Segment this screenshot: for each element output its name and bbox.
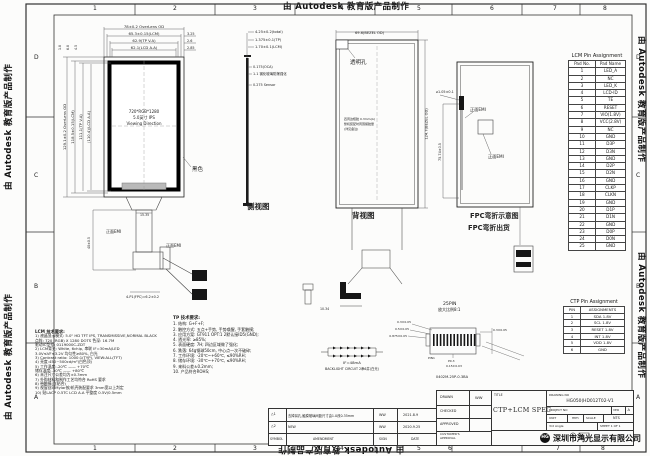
- back-view: 69.6(BEZEL OD) 124.7(BEZEL OD) 透明孔 四周边框胶…: [303, 30, 429, 311]
- dim-label: 4.5: [74, 45, 78, 50]
- pad-name: LCD-ID: [596, 90, 626, 97]
- pad-no: 9: [569, 126, 596, 133]
- pad-no: 12: [569, 148, 596, 155]
- front-view: [63, 27, 207, 300]
- pad-name: LED_A: [596, 68, 626, 75]
- dim-label: 1.70±0.1(LCM): [255, 45, 283, 49]
- pad-name: GND: [596, 221, 626, 228]
- emi-label: 正面EMI: [106, 229, 121, 234]
- note-line: (详见备注): [344, 126, 358, 131]
- pad-no: 3: [569, 82, 596, 89]
- pin-row: 4 INT 1.8V: [564, 333, 625, 340]
- fpc-bend-subtitle: FPC弯折出货: [468, 223, 510, 232]
- pad-no: 6: [569, 104, 596, 111]
- fpc-bend-view: ⌀1.05±0.1 75.74±0.5 正面EMI 正面EMI FPC弯折示意图…: [436, 62, 533, 272]
- panel-size: 5.0英寸 IPS: [133, 114, 155, 120]
- pin-row: 1 LED_A: [569, 68, 626, 75]
- pad-no: 21: [569, 214, 596, 221]
- pad-name: D1P: [596, 206, 626, 213]
- pin-row: 3 LED_K: [569, 82, 626, 89]
- pin-no: 2: [564, 320, 581, 327]
- title-block: DRAWN WW CHECKED APPROVED CUSTOMER'S APP…: [436, 390, 634, 446]
- drawing-no-value: HG050(HD012T02-V1: [547, 399, 633, 404]
- col-header: Pad Name: [596, 61, 626, 68]
- ctp-pin-assignment: CTP Pin Assignment PIN ASSIGNMENTS 1 SDA…: [560, 300, 628, 354]
- angle-label: 3rd Angle: [549, 424, 563, 428]
- connector-scale: 放大比例8:1: [438, 306, 461, 312]
- lcm-pin-assignment: LCM Pin Assignment Pad No. Pad Name 1 LE…: [566, 53, 628, 251]
- pin-row: 6 RESET: [569, 104, 626, 111]
- dim-label: 4.25±0.2(total): [255, 30, 283, 34]
- pin-row: 10 GND: [569, 133, 626, 140]
- dim-label: 6.8: [66, 45, 70, 50]
- company-logo: HG: [540, 433, 550, 443]
- pad-no: 16: [569, 177, 596, 184]
- dim-label: 2.6: [187, 39, 192, 43]
- pin-row: 6 GND: [564, 347, 625, 354]
- pad-no: 17: [569, 185, 596, 192]
- pin-no: 1: [564, 313, 581, 320]
- fpc-stiffener-1: [192, 270, 207, 281]
- pad-no: 8: [569, 119, 596, 126]
- revision-table: △1 去掉耳孔,触摸玻璃间距尺寸由1.0改0.35mm WW 2021.8.9 …: [268, 408, 438, 446]
- pin-row: 2 SCL 1.8V: [564, 320, 625, 327]
- ctp-pin-table: PIN ASSIGNMENTS 1 SDA 1.8V 2 SCL 1.8V: [563, 306, 625, 354]
- pin-row: 18 CLKN: [569, 192, 626, 199]
- pin-row: 5 TE: [569, 97, 626, 104]
- backlight-label: BACKLIGHT CIRCUIT 2串6并(白光): [325, 366, 379, 371]
- pin-no: 5: [564, 340, 581, 347]
- drawn-value: WW: [475, 395, 483, 400]
- pin-row: 17 CLKP: [569, 185, 626, 192]
- rev-amendment: 去掉耳孔,触摸玻璃间距尺寸由1.0改0.35mm: [288, 413, 354, 418]
- pad-no: 23: [569, 228, 596, 235]
- pad-no: 10: [569, 133, 596, 140]
- pad-no: 5: [569, 97, 596, 104]
- pin-row: 23 D0P: [569, 228, 626, 235]
- rev-symbol: △2: [271, 424, 276, 428]
- pad-no: 7: [569, 112, 596, 119]
- dim-label: 124.7(BEZEL OD): [425, 108, 429, 140]
- dim-label: 118.5±0.15(LCM): [70, 110, 75, 144]
- hole-label: 透明孔: [350, 58, 367, 66]
- emi-label: 正面EMI: [470, 107, 486, 113]
- pad-no: 13: [569, 155, 596, 162]
- pin-row: 16 GND: [569, 177, 626, 184]
- rev-symbol: △1: [271, 412, 276, 416]
- dim-label: 1.375±0.1(TP): [255, 38, 282, 42]
- note-line: 四周边框胶 0.3mm(A): [344, 116, 375, 121]
- emi-label: 正面EMI: [488, 154, 504, 160]
- pad-name: D0N: [596, 236, 626, 243]
- pad-name: LED_K: [596, 82, 626, 89]
- dim-label: 40±0.5: [87, 237, 91, 249]
- col-header: Pad No.: [569, 61, 596, 68]
- pin-row: 2 NC: [569, 75, 626, 82]
- pin-row: 8 VCC(2.8V): [569, 119, 626, 126]
- dim-label: 15.35: [140, 213, 149, 217]
- dim-label: 62.9(TP V.A): [132, 38, 156, 43]
- pin-row: 13 GND: [569, 155, 626, 162]
- viewing-direction: Viewing Direction: [126, 121, 161, 126]
- dim-label: 2.85: [187, 46, 195, 50]
- rev-date: 2020.9.25: [403, 425, 420, 429]
- pin-row: 25 GND: [569, 243, 626, 250]
- note-line: 10) 贴LACP 0.5TC LCD A.A 平整度 0.5V/0.5mm: [35, 391, 207, 395]
- backlight-current: IF=48mA: [343, 360, 361, 365]
- dim-label: 78±0.2 OverLens OD: [124, 24, 164, 29]
- pad-no: 25: [569, 243, 596, 250]
- dim-label: 129.1±0.2 OverLens OD: [62, 104, 67, 150]
- sheet-value: SHEET 1 OF 1: [600, 424, 621, 428]
- rev-sign: WW: [379, 425, 386, 429]
- dim-label: 75.74±0.5: [438, 143, 442, 161]
- ver-value: A: [628, 408, 630, 412]
- layer-note: 1.1 钢化玻璃防爆强化: [253, 71, 287, 76]
- pad-no: 14: [569, 163, 596, 170]
- pin-row: 3 RESET 1.8V: [564, 327, 625, 334]
- dim-label: 1.8: [58, 45, 62, 50]
- dim-label: 62.1(LCD A.A): [131, 45, 158, 50]
- pin-row: 4 LCD-ID: [569, 90, 626, 97]
- dim-label: 0.15±0.03: [446, 364, 462, 368]
- fpc-stiffener-2: [192, 289, 207, 300]
- pad-name: RESET: [596, 104, 626, 111]
- dim-label: 0.3±0.05: [397, 320, 411, 324]
- pin-no: 3: [564, 327, 581, 334]
- dim-label: 0.875±0.05: [389, 334, 407, 338]
- pad-no: 24: [569, 236, 596, 243]
- pad-name: D0P: [596, 228, 626, 235]
- emi-label: 正面EMI: [166, 243, 181, 248]
- pin-row: 9 NC: [569, 126, 626, 133]
- side-view: 4.25±0.2(total) 1.375±0.1(TP) 1.70±0.1(L…: [243, 30, 287, 211]
- pin-row: 12 D3N: [569, 148, 626, 155]
- pad-no: 19: [569, 199, 596, 206]
- rev-sign: WW: [379, 413, 386, 417]
- lcm-pin-table-title: LCM Pin Assignment: [566, 53, 628, 59]
- tp-notes-lines: 1. 结构: G+F+F;2. 触控方式: 五点+手势, 手势唤醒, 手套触摸;…: [173, 321, 333, 374]
- rev-header-symbol: SYMBOL: [270, 437, 283, 441]
- rev-header-date: DATE: [411, 437, 419, 441]
- pin-row: 7 VIO(1.8V): [569, 112, 626, 119]
- table-header-row: PIN ASSIGNMENTS: [564, 307, 625, 314]
- drawing-title: CTP+LCM SPEC: [493, 406, 545, 414]
- drawing-sheet: 由 Autodesk 教育版产品制作 由 Autodesk 教育版产品制作 由 …: [0, 0, 650, 456]
- rev-amendment: NEW: [288, 425, 296, 429]
- scale-value: NTS: [613, 416, 620, 420]
- dim-label: 111.1(TP V.A): [78, 114, 83, 140]
- note-line: 10. 产品符合ROHS;: [173, 369, 333, 374]
- approved-label: APPROVED: [440, 422, 458, 426]
- pad-name: GND: [596, 155, 626, 162]
- pin-row: 19 GND: [569, 199, 626, 206]
- drawn-label: DRAWN: [440, 395, 453, 399]
- lcm-pin-table: Pad No. Pad Name 1 LED_A 2 NC: [568, 60, 626, 251]
- dim-label: 10.34: [320, 307, 329, 311]
- side-view-label: 侧视图: [247, 201, 270, 211]
- unit-value: mm: [572, 416, 579, 420]
- customer-approval-label: CUSTOMER'S APPROVAL: [440, 433, 460, 440]
- pad-no: 20: [569, 206, 596, 213]
- note-line: 整机装配时周围留胶量: [344, 121, 374, 126]
- pad-name: D1N: [596, 214, 626, 221]
- checked-label: CHECKED: [440, 409, 456, 413]
- pad-name: D3P: [596, 141, 626, 148]
- pad-name: GND: [596, 133, 626, 140]
- rev-date: 2021.8.9: [403, 413, 418, 417]
- rev-header-sign: SIGN: [379, 437, 387, 441]
- pin-row: 14 D2P: [569, 163, 626, 170]
- pin-assignment: SCL 1.8V: [581, 320, 625, 327]
- pin-assignment: VDD 1.8V: [581, 340, 625, 347]
- pad-no: 11: [569, 141, 596, 148]
- dim-label: ⌀1.05±0.1: [436, 90, 454, 94]
- dim-label: 69.6(BEZEL OD): [355, 31, 385, 35]
- ver-label: VER: [613, 408, 619, 412]
- project-no-label: PROJECT NO: [549, 408, 568, 412]
- company-name: 深圳市鸿光显示有限公司: [553, 433, 641, 444]
- layer-note: 0.275 Sensor: [253, 83, 276, 87]
- dim-label: 0.5±0.05: [395, 327, 409, 331]
- connector-detail: 0.3±0.05 0.5±0.05 0.875±0.05 0.3±0.05 P0…: [389, 301, 524, 379]
- fpc-bend-title: FPC弯折示意图: [470, 211, 519, 220]
- unit-label: UNIT: [549, 416, 556, 420]
- pad-name: D2N: [596, 170, 626, 177]
- dim-label: 65.3±0.15(LCM): [128, 31, 160, 36]
- pin-assignment: INT 1.8V: [581, 333, 625, 340]
- pin-assignment: RESET 1.8V: [581, 327, 625, 334]
- pin-row: 24 D0N: [569, 236, 626, 243]
- pad-name: VIO(1.8V): [596, 112, 626, 119]
- pin1-label: PIN1: [428, 356, 435, 360]
- dim-label: 3.25: [187, 32, 195, 36]
- pad-name: GND: [596, 199, 626, 206]
- pin-row: 15 D2N: [569, 170, 626, 177]
- drawing-no-label: DRAWING NO: [549, 393, 569, 397]
- pad-no: 4: [569, 90, 596, 97]
- ctp-pin-table-title: CTP Pin Assignment: [560, 300, 628, 305]
- back-view-label: 背视图: [352, 210, 375, 220]
- pin-no: 4: [564, 333, 581, 340]
- pin-row: 20 D1P: [569, 206, 626, 213]
- pad-name: VCC(2.8V): [596, 119, 626, 126]
- layer-note: 0.175(OCA): [253, 65, 273, 69]
- pad-no: 18: [569, 192, 596, 199]
- col-header: ASSIGNMENTS: [581, 307, 625, 314]
- pad-name: GND: [596, 243, 626, 250]
- pad-no: 2: [569, 75, 596, 82]
- scale-label: SCALE: [586, 416, 596, 420]
- panel-resolution: 720*RGB*1280: [129, 109, 160, 114]
- dim-label: (110.4)(LCD A.A): [86, 110, 91, 143]
- connector-part-no: 0402M-25P-0.3BA: [436, 375, 469, 379]
- pad-name: D2P: [596, 163, 626, 170]
- pad-name: NC: [596, 75, 626, 82]
- col-header: PIN: [564, 307, 581, 314]
- pad-name: TE: [596, 97, 626, 104]
- pin-assignment: SDA 1.8V: [581, 313, 625, 320]
- pad-name: GND: [596, 177, 626, 184]
- pad-no: 22: [569, 221, 596, 228]
- dim-label: 4-P1(FPC)=6.2±0.2: [126, 295, 159, 299]
- dim-label: P0.3: [448, 359, 455, 363]
- pin-row: 21 D1N: [569, 214, 626, 221]
- rev-header-amendment: AMENDMENT: [313, 437, 334, 441]
- pin-row: 22 GND: [569, 221, 626, 228]
- pad-name: NC: [596, 126, 626, 133]
- bezel-color-label: 黑色: [192, 165, 204, 173]
- pad-no: 15: [569, 170, 596, 177]
- pad-no: 1: [569, 68, 596, 75]
- pin-row: 5 VDD 1.8V: [564, 340, 625, 347]
- tp-notes: TP 技术要求: 1. 结构: G+F+F;2. 触控方式: 五点+手势, 手势…: [173, 316, 333, 374]
- pin-row: 11 D3P: [569, 141, 626, 148]
- pad-name: D3N: [596, 148, 626, 155]
- title-label: TITLE: [494, 393, 503, 397]
- pad-name: CLKP: [596, 185, 626, 192]
- pin-assignment: GND: [581, 347, 625, 354]
- pin-no: 6: [564, 347, 581, 354]
- pin-row: 1 SDA 1.8V: [564, 313, 625, 320]
- pad-name: CLKN: [596, 192, 626, 199]
- table-header-row: Pad No. Pad Name: [569, 61, 626, 68]
- dim-label: 0.3±0.05: [493, 328, 507, 332]
